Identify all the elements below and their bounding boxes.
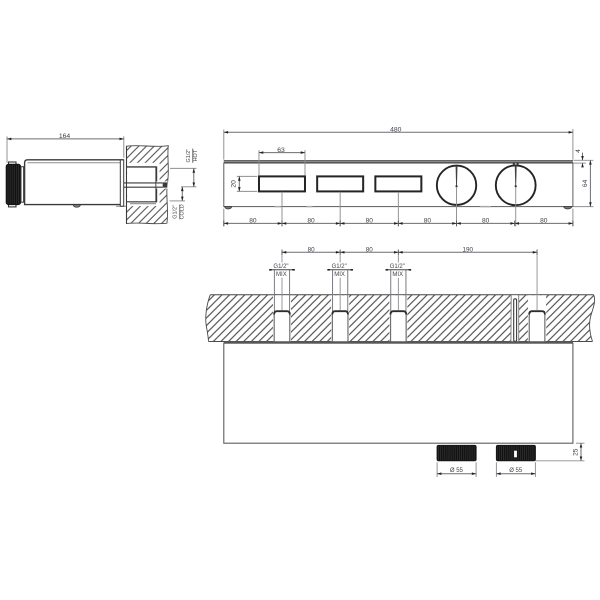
svg-text:63: 63 — [277, 147, 285, 154]
svg-text:G1/2": G1/2" — [390, 264, 405, 270]
svg-text:80: 80 — [540, 218, 548, 225]
svg-text:MIX: MIX — [334, 272, 345, 278]
svg-text:MIX: MIX — [392, 272, 403, 278]
svg-text:25: 25 — [572, 448, 579, 456]
svg-text:4: 4 — [575, 149, 582, 153]
svg-text:G1/2": G1/2" — [273, 264, 288, 270]
svg-text:80: 80 — [482, 218, 490, 225]
svg-text:80: 80 — [308, 247, 316, 254]
svg-text:HOT: HOT — [193, 149, 199, 161]
svg-text:80: 80 — [249, 218, 257, 225]
svg-text:80: 80 — [424, 218, 432, 225]
svg-text:MIX: MIX — [276, 272, 287, 278]
svg-text:80: 80 — [366, 247, 374, 254]
svg-text:Ø 55: Ø 55 — [509, 468, 523, 474]
svg-text:80: 80 — [366, 218, 374, 225]
svg-text:G1/2": G1/2" — [173, 205, 179, 219]
svg-text:164: 164 — [59, 133, 71, 140]
svg-text:80: 80 — [307, 218, 315, 225]
svg-text:COLD: COLD — [180, 204, 186, 219]
svg-text:G1/2": G1/2" — [186, 149, 192, 163]
svg-text:Ø 55: Ø 55 — [450, 468, 464, 474]
svg-text:64: 64 — [582, 179, 589, 187]
svg-text:20: 20 — [230, 180, 237, 188]
svg-text:190: 190 — [462, 247, 473, 254]
svg-text:G1/2": G1/2" — [332, 264, 347, 270]
svg-text:480: 480 — [390, 127, 402, 134]
